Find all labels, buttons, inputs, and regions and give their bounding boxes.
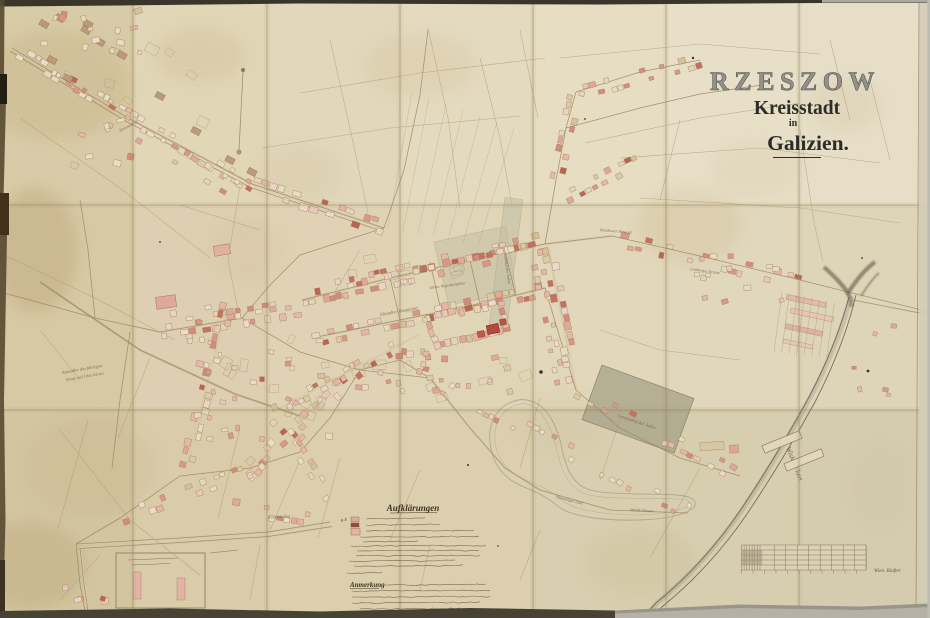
svg-text:Aufklärungen: Aufklärungen [386,503,440,513]
svg-text:Anmerkung: Anmerkung [349,581,385,589]
svg-text:Wien. Klafter: Wien. Klafter [874,569,901,574]
svg-text:in: in [789,118,798,129]
svg-text:Galizien.: Galizien. [767,131,849,155]
svg-text:g.E: g.E [341,517,347,522]
svg-text:Kreisstadt: Kreisstadt [754,98,841,119]
svg-text:RZESZOW: RZESZOW [710,67,880,96]
